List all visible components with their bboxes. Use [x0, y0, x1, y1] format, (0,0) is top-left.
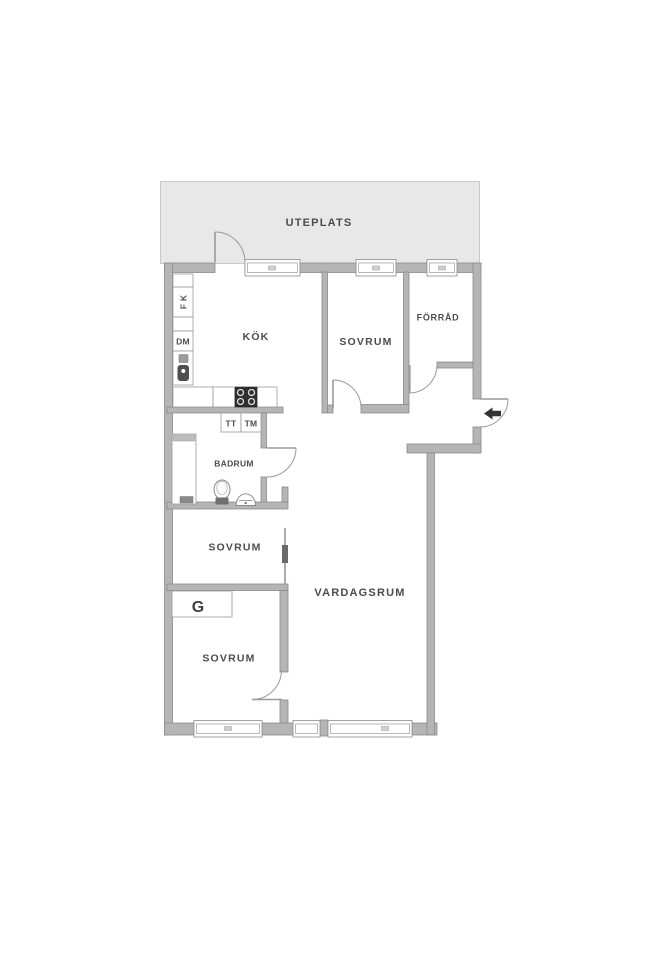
patio-area: UTEPLATS: [161, 182, 480, 264]
entrance-arrow-icon: [484, 408, 501, 420]
window-bedroom-bottom: [194, 721, 262, 738]
window-living-small: [293, 721, 320, 738]
door-storage: [409, 365, 437, 393]
door-bathroom: [267, 448, 296, 477]
wall-bedroom-bottom-right-upper: [280, 591, 288, 673]
wall-storage-bottom: [437, 362, 473, 368]
room-label-kitchen: KÖK: [243, 330, 270, 343]
sink-drain-icon: [181, 369, 185, 373]
dryer-label: TT: [226, 419, 237, 429]
wardrobe: G: [172, 591, 232, 617]
room-labels: KÖK SOVRUM FÖRRÅD BADRUM SOVRUM VARDAGSR…: [202, 313, 459, 665]
wall-bathroom-right-upper: [261, 413, 267, 448]
washbasin-icon: [236, 494, 256, 506]
kitchen-cabinet: [173, 317, 193, 331]
room-label-bedroom-top: SOVRUM: [339, 336, 392, 348]
sink-basin-icon: [178, 365, 190, 381]
sliding-door-bedroom-mid: [282, 545, 288, 563]
wall-bedroom-top-bottom: [361, 405, 409, 414]
kitchen-sink-unit: [173, 351, 193, 385]
faucet-icon: [179, 355, 188, 363]
kitchen-counter: [257, 387, 277, 407]
window-storage: [427, 260, 457, 277]
door-bedroom-top: [333, 380, 361, 408]
wall-right-upper: [473, 263, 481, 399]
toilet-icon: [214, 480, 230, 505]
room-label-patio: UTEPLATS: [286, 217, 353, 229]
room-label-bedroom-mid: SOVRUM: [208, 542, 261, 554]
wall-bedroom-top-jamb: [328, 405, 334, 413]
dishwasher-label: DM: [176, 337, 190, 347]
bathroom-fixtures: [172, 434, 256, 506]
wall-bedroom-storage: [404, 272, 410, 405]
wall-bedroom-divider: [167, 584, 288, 591]
floor-plan-page: UTEPLATS: [0, 0, 645, 966]
floor-plan-drawing: UTEPLATS: [0, 0, 645, 966]
window-bedroom-top: [356, 260, 396, 277]
laundry-units: TT TM: [221, 413, 261, 432]
wall-kitchen-bedroom: [322, 272, 328, 413]
kitchen-cabinet: [173, 274, 193, 287]
wall-window-mullion: [320, 720, 328, 736]
kitchen-counter: [213, 387, 235, 407]
room-label-bedroom-bottom: SOVRUM: [202, 653, 255, 665]
window-living-large: [328, 721, 412, 738]
wall-kitchen-bottom: [167, 407, 283, 413]
wardrobe-label: G: [192, 599, 204, 616]
washing-machine-label: TM: [245, 419, 258, 429]
door-bedroom-bottom: [252, 670, 282, 700]
room-label-bathroom: BADRUM: [214, 459, 254, 469]
wall-bathroom-right-lower: [261, 477, 267, 502]
room-label-storage: FÖRRÅD: [417, 313, 460, 323]
wall-left: [165, 263, 173, 735]
kitchen-counter: [173, 387, 213, 407]
stove-icon: [235, 387, 257, 407]
wall-bedroom-bottom-right-lower: [280, 700, 288, 723]
room-label-living-room: VARDAGSRUM: [314, 587, 405, 599]
fridge-freezer-label: F K: [179, 294, 189, 309]
wall-bathroom-corner-stub: [282, 487, 288, 502]
window-kitchen: [245, 260, 300, 277]
shower-icon: [172, 434, 196, 504]
wall-hall-stub: [407, 444, 481, 453]
wall-living-right: [427, 453, 435, 735]
doors: [215, 232, 508, 700]
